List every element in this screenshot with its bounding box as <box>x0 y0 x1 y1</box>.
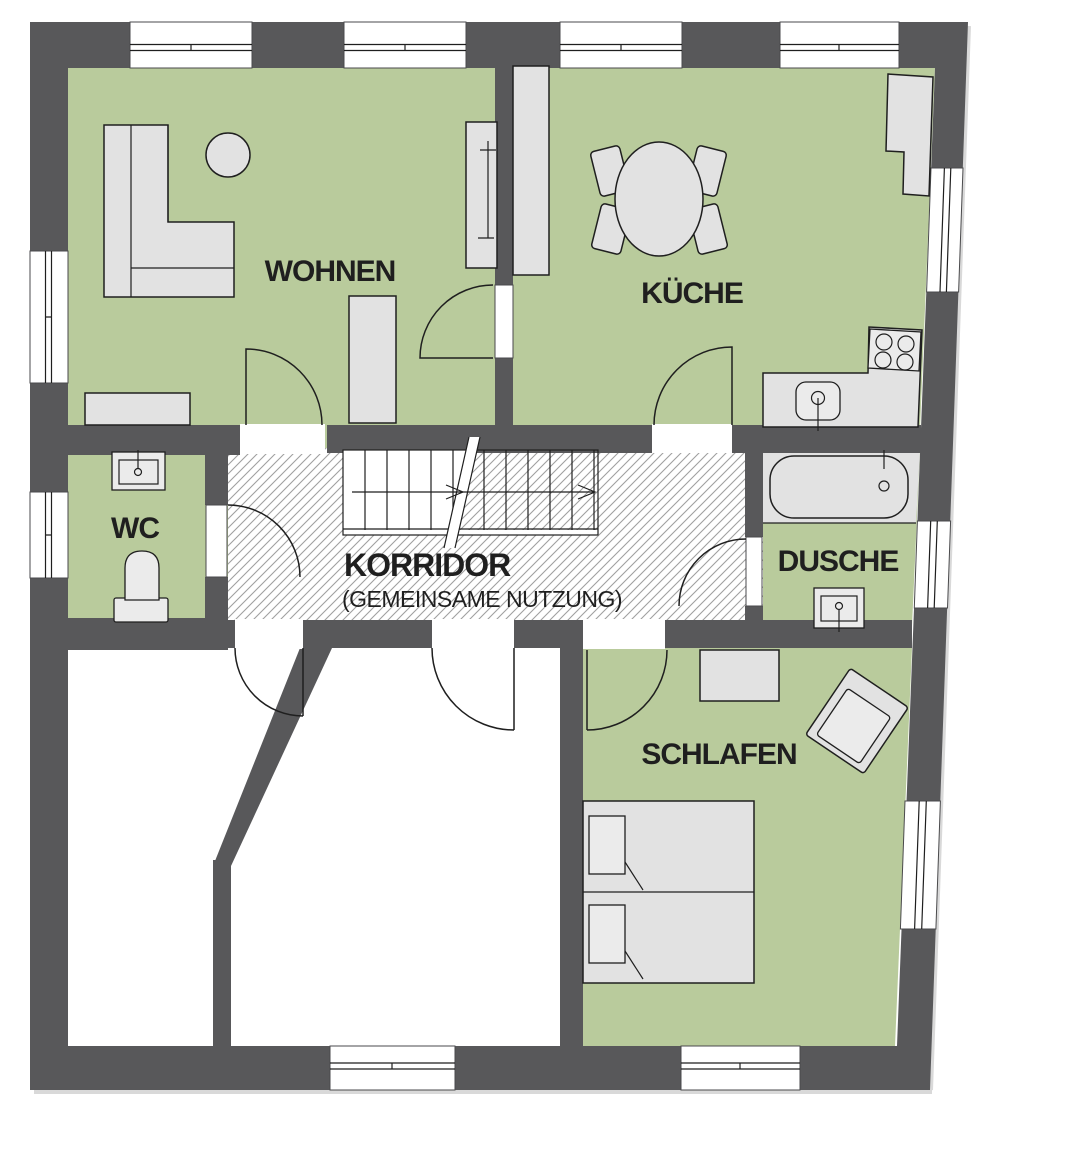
room-label-korridor: KORRIDOR <box>344 547 511 583</box>
window-top-4 <box>780 22 899 68</box>
room-label-kueche: KÜCHE <box>641 277 743 310</box>
threshold-kueche <box>652 424 732 453</box>
room-sublabel-korridor: (GEMEINSAME NUTZUNG) <box>342 586 622 612</box>
sideboard <box>85 393 190 425</box>
window-right-kueche <box>927 168 963 292</box>
wall-korridor-bottom-4 <box>665 620 912 648</box>
window-left-2 <box>30 492 68 578</box>
tall-cabinet <box>513 66 549 275</box>
wall-kueche-dusche <box>732 425 921 453</box>
wall-wc-korridor-upper <box>205 453 228 505</box>
wall-korridor-bottom-1 <box>205 620 235 648</box>
threshold-wohnen-kueche <box>495 285 513 358</box>
bathtub <box>770 456 908 518</box>
dresser <box>700 650 779 701</box>
room-label-schlafen: SCHLAFEN <box>641 738 796 771</box>
tv-board <box>466 122 497 268</box>
shelf <box>349 296 396 423</box>
wall-korridor-bottom-3 <box>514 620 583 648</box>
wall-wohnen-wc <box>68 425 240 455</box>
wall-wc-bottom <box>30 618 228 650</box>
door-leaf-dusche <box>746 537 762 606</box>
toilet-tank <box>114 598 168 622</box>
wall-wohnen-kueche-lower <box>495 358 513 425</box>
window-top-3 <box>560 22 682 68</box>
coffee-table <box>206 133 250 177</box>
stair-stringer-strip <box>344 530 597 535</box>
wall-korridor-bottom-2 <box>303 620 432 648</box>
toilet-bowl <box>125 551 159 600</box>
window-top-1 <box>130 22 252 68</box>
door-leaf-wc <box>206 505 227 577</box>
room-label-wc: WC <box>111 512 159 545</box>
wall-wc-korridor-lower <box>205 577 228 622</box>
threshold-room-b <box>432 619 514 649</box>
double-bed <box>583 801 754 983</box>
window-bottom-2 <box>681 1046 800 1090</box>
wall-korridor-dusche-upper <box>745 450 763 537</box>
window-left-1 <box>30 251 68 383</box>
window-right-dusche <box>914 521 950 608</box>
room-label-dusche: DUSCHE <box>778 545 899 578</box>
pillow-2 <box>589 905 625 963</box>
wall-korridor-top-mid <box>327 425 652 453</box>
threshold-schlafen <box>583 619 665 649</box>
threshold-room-a <box>235 619 303 649</box>
dining-table <box>615 142 703 256</box>
window-right-schlafen <box>900 801 940 929</box>
wall-schlafen-left <box>560 645 583 1046</box>
window-bottom-1 <box>330 1046 455 1090</box>
threshold-wohnen <box>240 424 325 454</box>
wall-korridor-dusche-lower <box>745 606 763 620</box>
window-top-2 <box>344 22 466 68</box>
room-label-wohnen: WOHNEN <box>265 255 396 288</box>
wall-room-divider <box>213 860 231 1046</box>
pillow-1 <box>589 816 625 874</box>
floor-plan: WOHNEN KÜCHE WC KORRIDOR (GEMEINSAME NUT… <box>0 0 1087 1162</box>
